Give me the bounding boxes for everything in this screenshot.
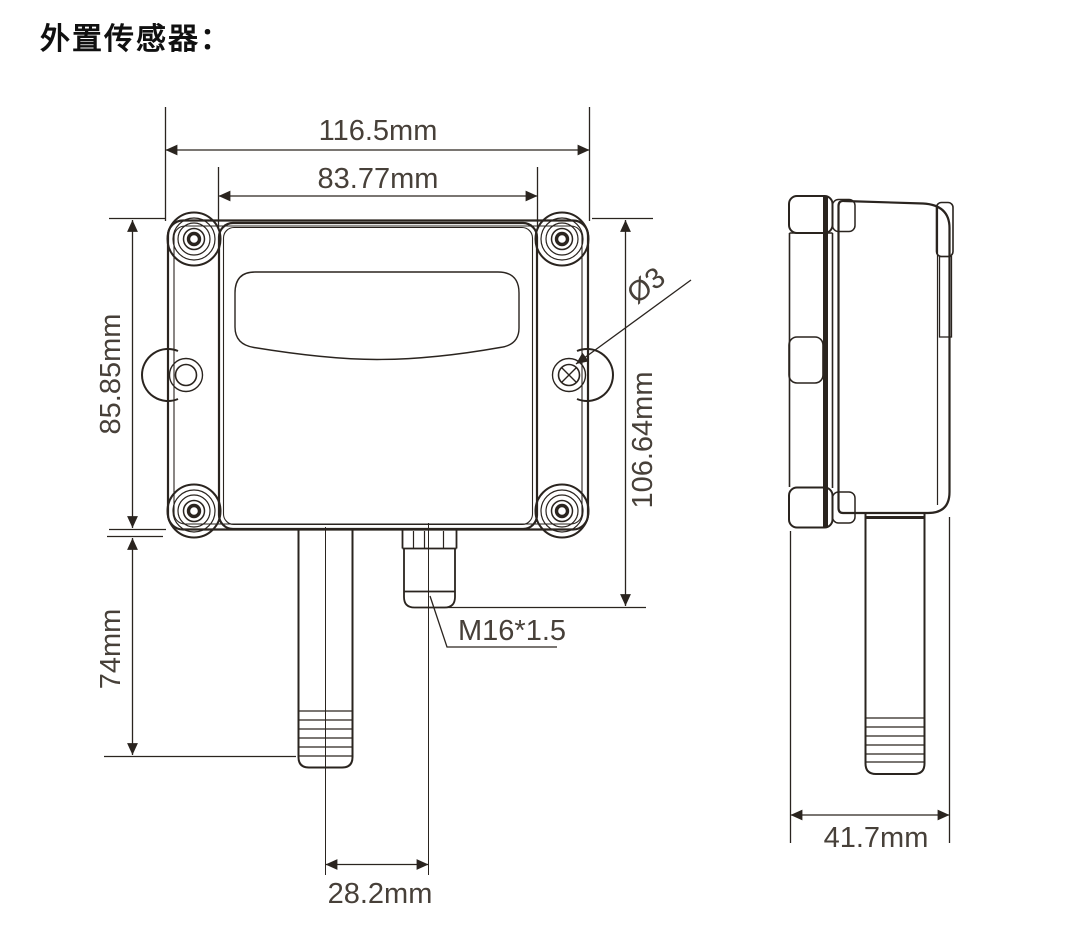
dim-lid-width-label: 83.77mm (318, 163, 439, 195)
corner-screw-bosses (168, 213, 589, 538)
cable-gland (403, 530, 457, 608)
dim-overall-height-label: 106.64mm (627, 371, 659, 508)
side-ear-segment (789, 337, 823, 383)
cable-gland-thread-label: M16*1.5 (458, 615, 566, 647)
side-body (839, 201, 954, 513)
side-probe-vents (866, 718, 924, 762)
mounting-ear-left (142, 349, 203, 401)
mounting-ear-right (553, 349, 614, 401)
mount-hole-diameter-label: Ø3 (621, 261, 671, 310)
dim-body-height-label: 85.85mm (95, 314, 127, 435)
dim-probe-length-label: 74mm (95, 609, 127, 690)
side-probe (866, 513, 925, 774)
drawing-page: 外置传感器： (0, 0, 1080, 928)
side-back-plate (789, 196, 855, 528)
front-flange-inner-outline (174, 226, 582, 524)
dim-probe-offset-label: 28.2mm (328, 878, 433, 910)
front-flange-outline (168, 221, 588, 530)
sensor-dimension-drawing: 116.5mm 83.77mm 85.85mm 74mm 106.64mm Ø3… (0, 0, 1080, 928)
mount-hole-cross (562, 368, 577, 383)
front-label-window (235, 272, 519, 360)
front-lid-outline (219, 223, 537, 529)
dim-depth-label: 41.7mm (824, 822, 929, 854)
dim-outer-width-label: 116.5mm (319, 115, 438, 147)
side-view (789, 196, 953, 774)
front-view (142, 213, 613, 876)
